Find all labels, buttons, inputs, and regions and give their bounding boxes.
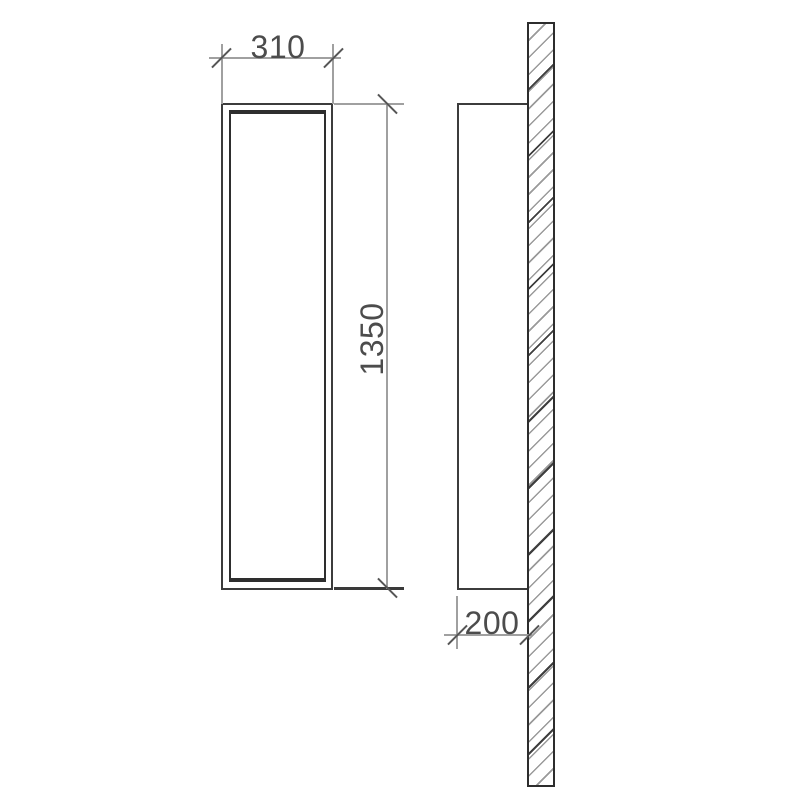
dim-width-extension-line-right bbox=[332, 44, 334, 104]
dim-height-extension-line-top bbox=[334, 103, 404, 105]
dim-width-extension-line-left bbox=[221, 44, 223, 104]
dim-depth-label: 200 bbox=[452, 607, 532, 639]
dim-height-label: 1350 bbox=[356, 279, 388, 399]
dim-height-extension-line-bottom bbox=[334, 587, 404, 590]
dim-width-label: 310 bbox=[238, 31, 318, 63]
technical-drawing-canvas: 310 1350 200 bbox=[0, 0, 800, 800]
wall-section-hatched bbox=[527, 22, 555, 787]
front-view-door-panel bbox=[229, 110, 326, 582]
side-view-cabinet-outline bbox=[457, 103, 529, 590]
